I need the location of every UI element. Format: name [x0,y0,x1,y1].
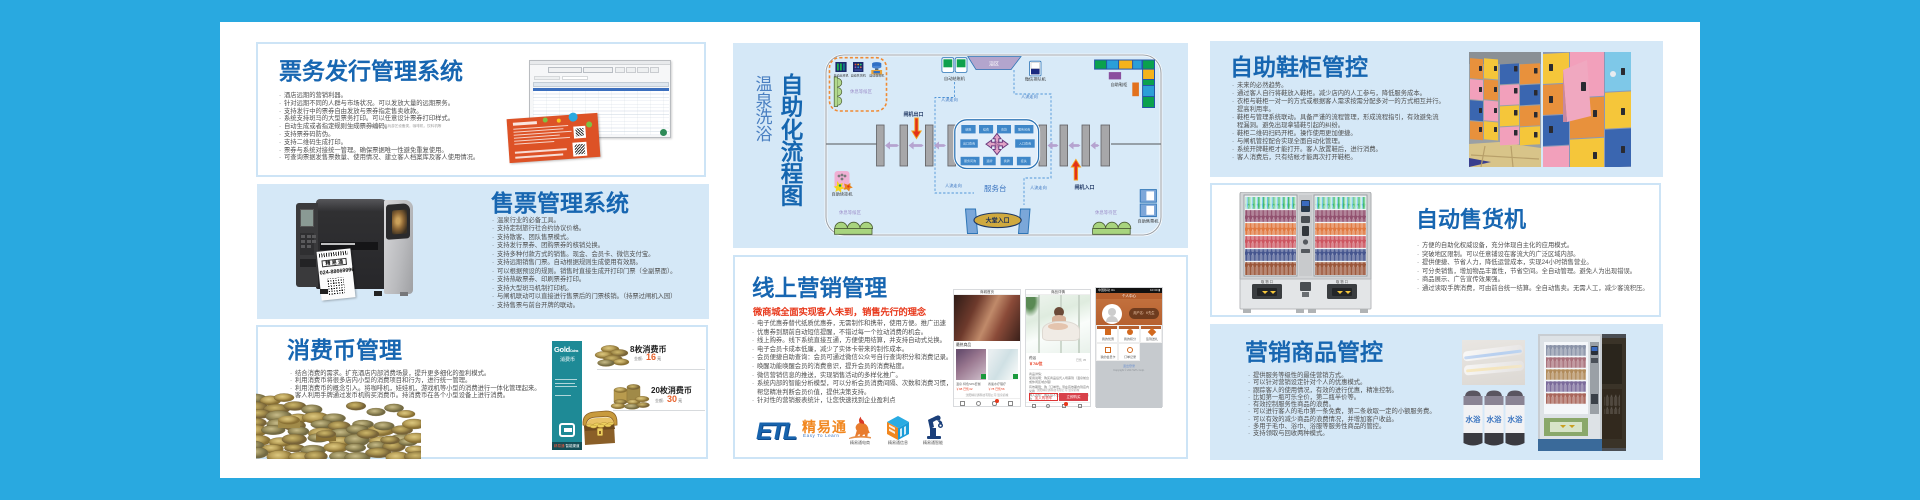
svg-text:自动咖啡机: 自动咖啡机 [869,73,884,78]
svg-text:入口查询: 入口查询 [1019,141,1031,146]
svg-text:自助鞋柜: 自助鞋柜 [1111,81,1128,88]
svg-text:服务台: 服务台 [984,183,1007,193]
svg-text:水浴: 水浴 [1466,414,1482,424]
svg-text:自助续挂机: 自助续挂机 [832,191,854,198]
svg-text:挂失: 挂失 [1021,158,1027,163]
svg-text:微信排队机: 微信排队机 [1025,76,1047,83]
svg-text:换牌: 换牌 [1004,158,1010,163]
svg-text:退牌: 退牌 [986,158,992,163]
svg-text:大堂入口: 大堂入口 [986,217,1010,225]
svg-text:大厅: 大厅 [994,144,1000,148]
svg-text:自动售货机: 自动售货机 [851,73,866,78]
svg-text:浴区: 浴区 [989,61,999,68]
svg-text:自动结账机: 自动结账机 [944,75,966,82]
svg-text:人流走向: 人流走向 [941,96,958,103]
svg-text:休息等待区: 休息等待区 [1095,209,1118,216]
svg-text:取 物 口: 取 物 口 [1336,279,1348,284]
svg-text:人流走向: 人流走向 [945,182,962,189]
svg-text:结账: 结账 [965,126,971,131]
svg-text:闸机入口: 闸机入口 [1074,184,1094,191]
svg-text:人流走向: 人流走向 [1030,184,1047,191]
svg-text:续费: 续费 [983,126,989,131]
svg-text:取 物 口: 取 物 口 [1261,279,1273,284]
svg-text:服务问询: 服务问询 [964,158,976,163]
svg-text:出口查询: 出口查询 [963,141,975,146]
svg-text:自助售票机: 自助售票机 [1138,218,1160,225]
svg-text:充款: 充款 [1001,126,1007,131]
svg-text:水浴: 水浴 [1508,414,1524,424]
svg-text:闸机出口: 闸机出口 [903,111,923,118]
svg-text:服务问询: 服务问询 [1018,126,1030,131]
svg-text:休息等候区: 休息等候区 [839,209,862,216]
svg-text:人流走向: 人流走向 [1021,93,1038,100]
svg-text:休息等候区: 休息等候区 [850,88,873,95]
svg-text:水浴: 水浴 [1487,414,1503,424]
